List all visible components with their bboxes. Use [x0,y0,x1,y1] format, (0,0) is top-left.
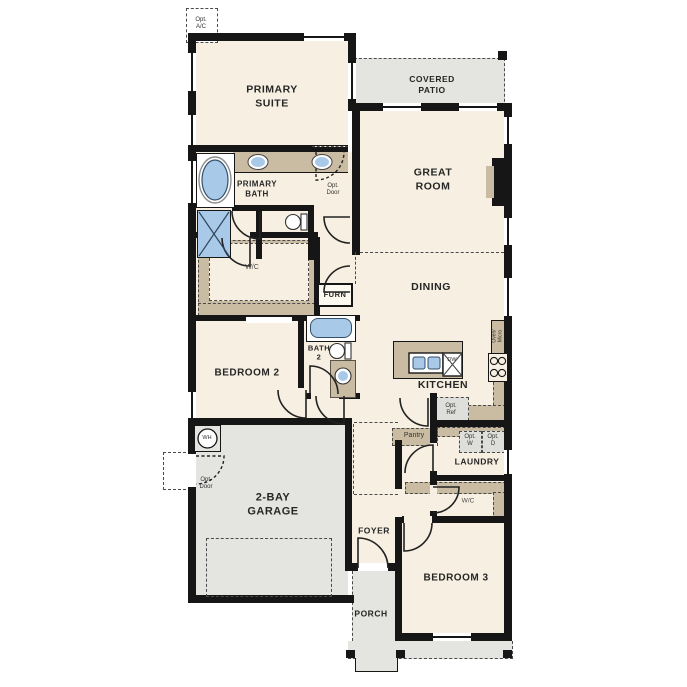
bath2-label: BATH 2 [308,344,330,361]
wall [352,111,360,255]
primary-tub-surround [196,153,235,208]
window [504,116,512,145]
window [504,449,512,475]
wall [430,420,512,427]
window [504,217,512,246]
window [458,103,498,111]
front-door-opening [358,563,388,571]
window [382,103,422,111]
bed3-wic-label: W/C [462,497,475,504]
window [432,633,472,641]
door-opening [404,516,432,523]
kitchen-label: KITCHEN [418,379,468,393]
cooktop [488,353,508,382]
opt-door-garage-box [163,452,191,490]
primary-bath-label: PRIMARY BATH [237,180,277,201]
window [348,62,356,100]
window [188,52,196,92]
ceiling-break-line [360,252,504,253]
ceiling-break-line [354,422,398,423]
furn-label: FURN [324,290,347,300]
shower [197,210,231,258]
ceiling-break-line [312,146,348,147]
wall [345,418,352,571]
bath2-vanity [330,360,356,398]
door-opening [430,485,437,511]
ceiling-break-line [355,252,356,284]
wall [430,475,504,481]
wh-label: WH [202,435,211,441]
covered-patio-label: COVERED PATIO [409,74,455,96]
wall [430,393,437,427]
bed3-wic-shelf-top [405,482,506,494]
porch-post [346,650,355,658]
door-opening [430,443,437,471]
garage-apron [206,538,332,597]
bedroom3-label: BEDROOM 3 [423,572,488,585]
opt-door-bath-label: Opt. Door [326,183,339,197]
great-room-label: GREAT ROOM [414,166,452,193]
pantry-label: Pantry [404,432,424,440]
bath2-tub [310,318,352,338]
opt-dryer-label: Opt. D [487,434,498,448]
laundry-label: LAUNDRY [455,456,500,467]
dw-label: DW [447,357,456,363]
wall [232,205,310,211]
fireplace-hearth [486,166,494,198]
porch-horizontal [348,641,513,659]
window [504,277,512,317]
sliding-door-opening [246,315,292,323]
opt-ref-label: Opt. Ref [445,403,456,417]
door-opening [298,388,304,418]
floor-plan: Opt. A/C PRIMARY SUITE COVERED PATIO GRE… [0,0,687,687]
garage-opt-door-opening [188,454,196,487]
porch-vertical [352,571,399,641]
porch-post [503,650,512,658]
oven-micro-label: Oven/ Micro [492,329,504,342]
fireplace [492,158,512,206]
primary-suite-label: PRIMARY SUITE [246,83,298,110]
window [303,33,345,41]
wall [395,440,402,641]
foyer-label: FOYER [358,525,390,536]
garage-label: 2-BAY GARAGE [247,491,298,520]
ceiling-break-line [354,494,398,495]
patio-post [348,51,356,59]
wall [188,418,352,425]
porch-label: PORCH [354,608,387,619]
opt-washer-label: Opt. W [464,434,475,448]
window [188,114,196,146]
porch-step [355,658,398,672]
primary-vanity [233,152,348,173]
opt-ac-label: Opt. A/C [195,17,206,31]
window [188,160,196,204]
primary-wic-label: W/C [245,264,259,272]
dining-label: DINING [411,281,451,295]
porch-post [396,650,405,658]
patio-post [498,51,507,60]
bedroom2-label: BEDROOM 2 [214,367,279,380]
opt-door-garage-label: Opt. Door [199,477,212,491]
ceiling-break-line [353,424,354,494]
window [188,391,196,419]
